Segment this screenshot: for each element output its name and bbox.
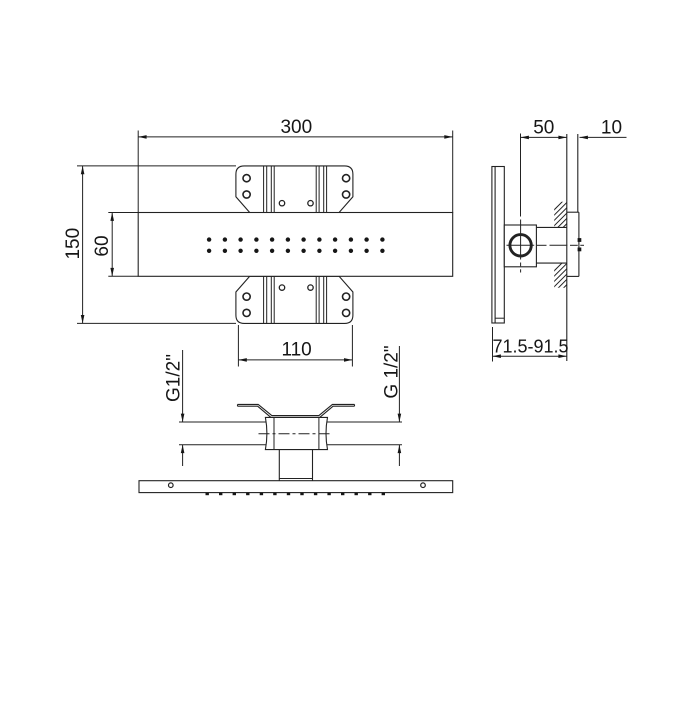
svg-text:110: 110 — [281, 340, 311, 361]
svg-text:150: 150 — [63, 228, 84, 260]
svg-text:G1/2": G1/2" — [164, 354, 185, 402]
svg-text:10: 10 — [601, 118, 622, 139]
svg-text:71.5-91.5: 71.5-91.5 — [492, 337, 568, 357]
svg-text:50: 50 — [533, 118, 554, 139]
svg-text:60: 60 — [92, 235, 113, 256]
svg-text:300: 300 — [280, 117, 312, 138]
svg-text:G 1/2": G 1/2" — [381, 345, 402, 398]
